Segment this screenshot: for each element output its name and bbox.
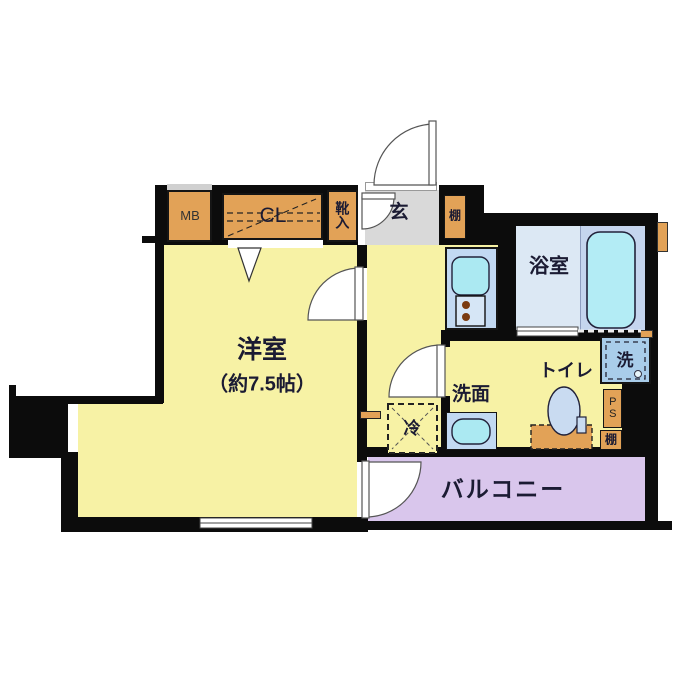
meter-box-label: MB [180,209,200,223]
entrance-inner-door-leaf [362,193,395,199]
shoe-cabinet-label: 靴入 [335,201,350,229]
entrance-shelf-label: 棚 [449,210,461,223]
washroom-door-swing [389,345,441,397]
balcony-door-swing [366,462,421,517]
shelf-label: 棚 [605,434,617,447]
bathroom-label: 浴室 [529,257,569,278]
plan-symbols [0,0,700,700]
washroom-door-leaf [437,345,445,397]
toilet-cistern [577,417,586,433]
stove [456,296,485,326]
bathtub [587,232,635,328]
kitchen-sink [452,257,489,295]
toilet-bowl [548,387,580,435]
entry-door-swing [374,124,433,185]
entrance-label: 玄 [389,203,408,223]
western-room-size-label: （約7.5帖） [208,375,316,396]
washbasin-sink [452,419,490,444]
closet-door-mark [238,248,261,281]
toilet-label: トイレ [539,362,593,381]
washroom-label: 洗面 [452,385,490,405]
balcony-door-leaf [362,461,369,518]
refrigerator-label: 冷 [404,420,421,438]
western-room-door-swing [308,268,360,320]
balcony-label: バルコニー [441,477,566,501]
western-room-label: 洋室 [237,337,287,363]
entry-door-leaf [429,121,436,185]
pipe-space-label: PS [606,396,618,420]
closet-label: CL [260,205,287,227]
western-room-door-leaf [355,267,363,320]
floor-plan: MB CL 靴入 玄 棚 浴室 洋室 （約7.5帖） 洗面 トイレ 冷 洗 PS… [0,0,700,700]
stove-burner [462,313,470,321]
stove-burner [462,301,470,309]
washer-drain [635,371,642,378]
washing-machine-label: 洗 [617,352,634,370]
